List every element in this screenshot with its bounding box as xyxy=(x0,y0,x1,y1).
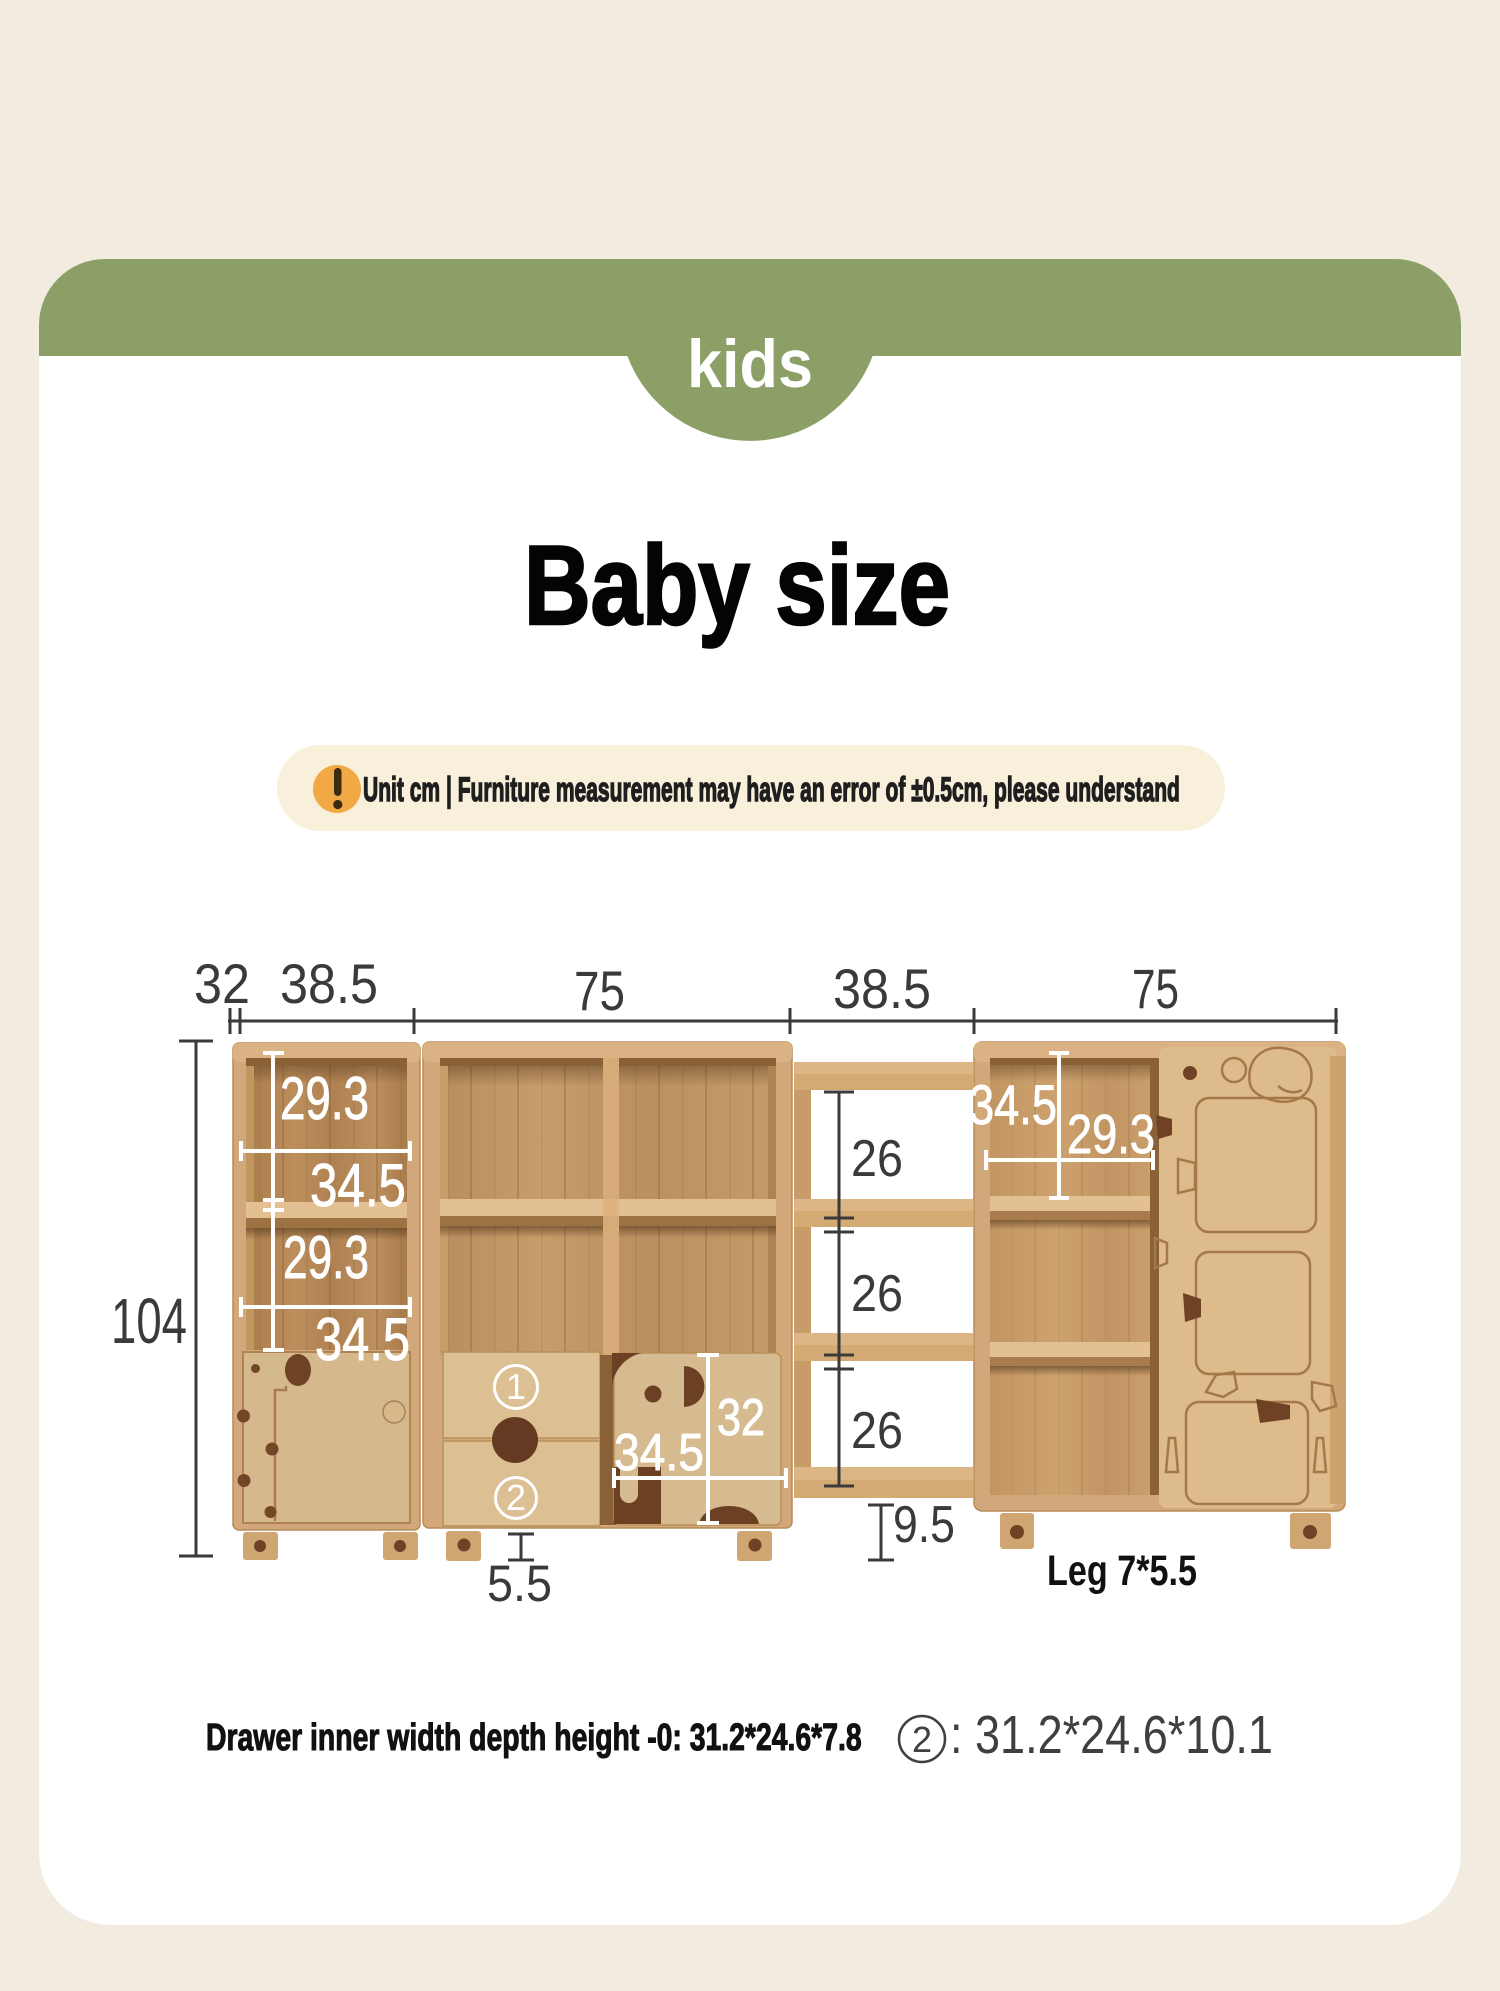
svg-text:75: 75 xyxy=(1132,957,1179,1020)
svg-text:1: 1 xyxy=(506,1366,526,1407)
svg-text:Unit cm | Furniture measuremen: Unit cm | Furniture measurement may have… xyxy=(363,770,1180,808)
svg-text:26: 26 xyxy=(851,1130,903,1188)
svg-text:: 31.2*24.6*10.1: : 31.2*24.6*10.1 xyxy=(950,1704,1273,1765)
svg-text:26: 26 xyxy=(851,1265,903,1323)
svg-text:2: 2 xyxy=(506,1477,526,1518)
svg-text:32: 32 xyxy=(194,954,250,1016)
svg-text:26: 26 xyxy=(851,1402,903,1460)
svg-text:34.5: 34.5 xyxy=(614,1423,704,1481)
svg-text:kids: kids xyxy=(687,326,813,402)
svg-text:104: 104 xyxy=(111,1285,187,1356)
svg-text:29.3: 29.3 xyxy=(1067,1103,1155,1165)
svg-text:Drawer inner width depth heigh: Drawer inner width depth height -0: 31.2… xyxy=(206,1717,862,1759)
svg-text:34.5: 34.5 xyxy=(310,1151,406,1219)
svg-text:Baby size: Baby size xyxy=(524,523,950,648)
svg-text:34.5: 34.5 xyxy=(315,1305,410,1373)
svg-text:34.5: 34.5 xyxy=(969,1073,1057,1136)
svg-text:29.3: 29.3 xyxy=(280,1066,369,1132)
svg-text:75: 75 xyxy=(574,960,625,1022)
svg-text:38.5: 38.5 xyxy=(280,954,378,1016)
svg-text:5.5: 5.5 xyxy=(487,1556,552,1612)
svg-text:29.3: 29.3 xyxy=(283,1224,369,1291)
svg-text:Leg 7*5.5: Leg 7*5.5 xyxy=(1047,1547,1197,1595)
svg-text:9.5: 9.5 xyxy=(893,1496,955,1554)
svg-text:32: 32 xyxy=(717,1389,765,1447)
svg-text:38.5: 38.5 xyxy=(833,959,931,1021)
svg-text:2: 2 xyxy=(912,1719,932,1760)
